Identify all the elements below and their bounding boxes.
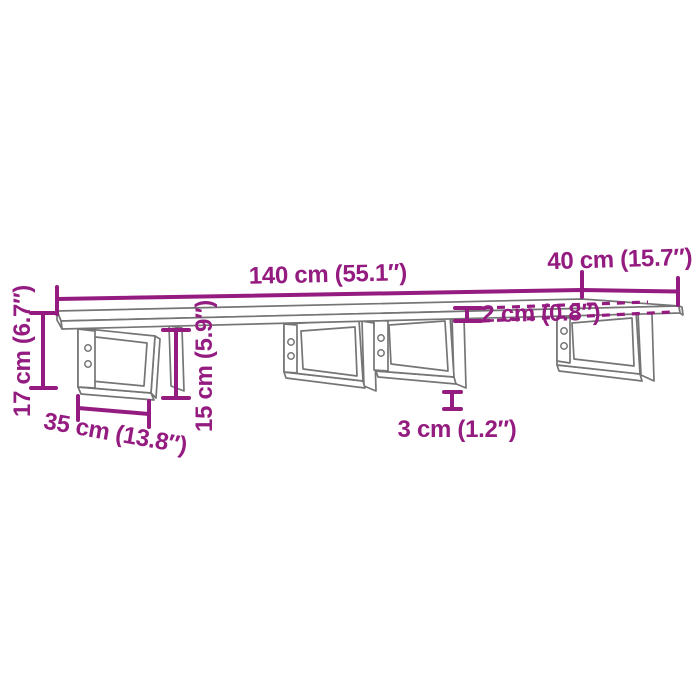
screw-hole-icon xyxy=(85,345,91,351)
board-thickness-dimension-label: 2 cm (0.8″) xyxy=(481,299,600,328)
screw-hole-icon xyxy=(561,343,567,349)
shelf-dimension-diagram: 140 cm (55.1″) 40 cm (15.7″) 17 cm (6.7″… xyxy=(0,0,700,700)
depth-dimension-label: 40 cm (15.7″) xyxy=(547,244,693,276)
dimension-line xyxy=(57,290,678,299)
bracket-3-mounting-plate xyxy=(374,320,388,371)
dimension-total-height: 17 cm (6.7″) xyxy=(9,285,56,417)
bracket-2-mounting-plate xyxy=(284,324,297,373)
bracket-height-dimension-label: 15 cm (5.9″) xyxy=(191,300,218,432)
dimension-bracket-foot: 3 cm (1.2″) xyxy=(398,392,517,443)
bracket-foot-dimension-label: 3 cm (1.2″) xyxy=(398,416,517,443)
bracket-1-mounting-plate xyxy=(78,329,95,388)
dimension-bracket-depth: 35 cm (13.8″) xyxy=(42,396,190,459)
screw-hole-icon xyxy=(288,339,294,345)
screw-hole-icon xyxy=(288,353,294,359)
bracket-depth-dimension-label: 35 cm (13.8″) xyxy=(42,408,190,460)
bracket-3-window xyxy=(389,321,448,371)
length-dimension-label: 140 cm (55.1″) xyxy=(249,259,408,290)
screw-hole-icon xyxy=(85,361,91,367)
bracket-1-window xyxy=(87,336,147,386)
board-right-end-face xyxy=(679,306,683,315)
screw-hole-icon xyxy=(378,350,384,356)
bracket-2 xyxy=(284,320,376,391)
bracket-1 xyxy=(78,326,184,400)
bracket-3 xyxy=(374,316,466,388)
dimension-line xyxy=(78,408,149,414)
bracket-2-window xyxy=(301,327,357,376)
screw-hole-icon xyxy=(378,335,384,341)
diagram-page: 140 cm (55.1″) 40 cm (15.7″) 17 cm (6.7″… xyxy=(0,0,700,700)
total-height-dimension-label: 17 cm (6.7″) xyxy=(9,285,36,417)
screw-hole-icon xyxy=(561,328,567,334)
